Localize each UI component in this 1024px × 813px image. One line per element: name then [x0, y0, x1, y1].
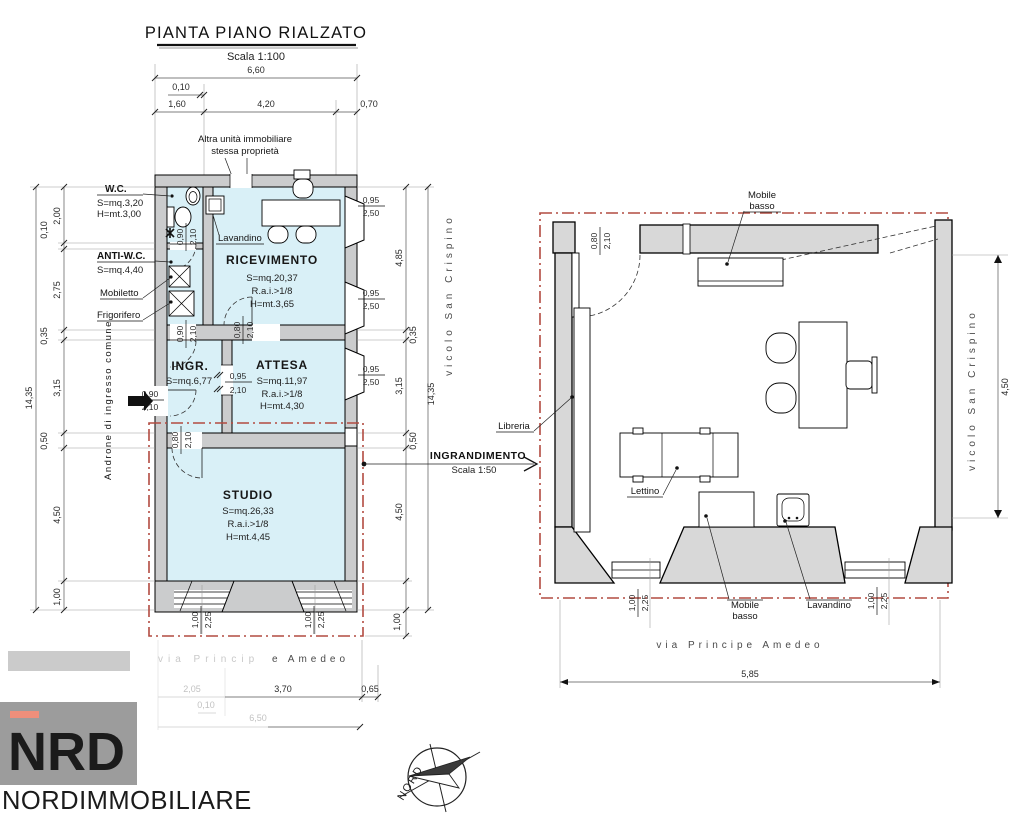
svg-text:2,10: 2,10 [245, 321, 255, 338]
logo-n-bar [10, 711, 39, 718]
svg-text:0,50: 0,50 [408, 432, 418, 450]
mobile-basso-top [698, 258, 783, 286]
chair-back [294, 170, 310, 179]
title-scale: Scala 1:100 [227, 51, 285, 63]
floorplan-drawing: PIANTA PIANO RIALZATO Scala 1:100 6,60 0… [0, 0, 1024, 813]
street-via-dark: e Amedeo [272, 654, 349, 665]
svg-text:6,50: 6,50 [249, 713, 267, 723]
wall-top-enlarged [640, 225, 878, 253]
svg-text:S=mq.4,40: S=mq.4,40 [97, 265, 143, 276]
svg-text:1,00: 1,00 [392, 613, 402, 631]
mid-dimension-chain: 4,85 0,35 3,15 0,50 4,50 1,00 14,35 vico… [357, 184, 455, 639]
svg-text:2,50: 2,50 [363, 377, 380, 387]
svg-text:1,00: 1,00 [190, 611, 200, 628]
chair [268, 226, 288, 243]
svg-text:3,15: 3,15 [394, 377, 404, 395]
svg-text:4,50: 4,50 [52, 506, 62, 524]
svg-text:2,25: 2,25 [203, 611, 213, 628]
svg-text:2,75: 2,75 [52, 281, 62, 299]
svg-text:R.a.i.>1/8: R.a.i.>1/8 [252, 286, 293, 297]
room-label-studio: STUDIO S=mq.26,33 R.a.i.>1/8 H=mt.4,45 [222, 488, 274, 543]
svg-text:0,50: 0,50 [39, 432, 49, 450]
dim-160: 1,60 [168, 99, 186, 109]
wall-left-enlarged [555, 253, 572, 527]
svg-text:INGR.: INGR. [171, 359, 208, 373]
svg-text:RICEVIMENTO: RICEVIMENTO [226, 253, 318, 267]
street-via-enlarged: via Principe Amedeo [656, 640, 823, 651]
north-compass: NORD [395, 744, 480, 812]
svg-text:R.a.i.>1/8: R.a.i.>1/8 [262, 389, 303, 400]
bottom-pillar-enlarged [660, 527, 845, 583]
chair [766, 383, 796, 413]
bottom-pillar [222, 581, 304, 612]
dim-420: 4,20 [257, 99, 275, 109]
svg-text:14,35: 14,35 [24, 387, 34, 410]
svg-text:S=mq.3,20: S=mq.3,20 [97, 198, 143, 209]
svg-text:0,80: 0,80 [232, 321, 242, 338]
svg-text:H=mt.3,00: H=mt.3,00 [97, 209, 141, 220]
svg-text:H=mt.4,45: H=mt.4,45 [226, 532, 270, 543]
svg-text:0,95: 0,95 [363, 364, 380, 374]
street-building-mass [8, 651, 130, 671]
chair [296, 226, 316, 243]
compass-label: NORD [395, 764, 426, 803]
bay-window-4 [345, 428, 357, 446]
svg-text:Mobile: Mobile [731, 600, 759, 611]
svg-text:Frigorifero: Frigorifero [97, 310, 140, 321]
svg-text:0,35: 0,35 [408, 326, 418, 344]
svg-text:Libreria: Libreria [498, 421, 530, 432]
svg-text:3,15: 3,15 [52, 379, 62, 397]
svg-text:H=mt.4,30: H=mt.4,30 [260, 401, 304, 412]
svg-text:0,65: 0,65 [361, 684, 379, 694]
svg-text:2,10: 2,10 [183, 431, 193, 448]
office-chair-back [872, 357, 877, 393]
antiwc-fixtures [169, 266, 194, 316]
svg-text:2,25: 2,25 [640, 594, 650, 611]
svg-text:1,00: 1,00 [866, 592, 876, 609]
svg-text:STUDIO: STUDIO [223, 488, 273, 502]
dim-660: 6,60 [247, 65, 265, 75]
svg-text:0,90: 0,90 [175, 228, 185, 245]
enlargement-callout: INGRANDIMENTO Scala 1:50 [362, 450, 537, 476]
page-title: PIANTA PIANO RIALZATO [145, 24, 367, 42]
bay-window-1 [345, 196, 364, 248]
svg-text:0,35: 0,35 [39, 327, 49, 345]
wall-top [155, 175, 357, 187]
mobile-basso-bottom [699, 492, 754, 527]
plan-enlarged [553, 220, 952, 583]
opening-top [230, 174, 252, 188]
svg-text:2,25: 2,25 [316, 611, 326, 628]
svg-text:Lavandino: Lavandino [218, 233, 262, 244]
wall-top-left-step [553, 222, 575, 253]
bay-window-3 [345, 348, 364, 400]
floorplan-sheet: PIANTA PIANO RIALZATO Scala 1:100 6,60 0… [0, 0, 1024, 813]
svg-text:2,00: 2,00 [52, 207, 62, 225]
window-left-enlarged [612, 562, 660, 578]
wall-joint [683, 224, 690, 254]
dim-010-top: 0,10 [172, 82, 190, 92]
street-vicolo-enlarged: vicolo San Crispino [967, 309, 978, 471]
svg-text:S=mq.20,37: S=mq.20,37 [246, 273, 298, 284]
logo-company-name: NORDIMMOBILIARE [2, 787, 252, 813]
chair [293, 179, 313, 198]
svg-text:H=mt.3,65: H=mt.3,65 [250, 299, 294, 310]
svg-text:Mobile: Mobile [748, 190, 776, 201]
svg-text:Lettino: Lettino [631, 486, 660, 497]
svg-text:2,10: 2,10 [188, 228, 198, 245]
svg-text:0,10: 0,10 [39, 221, 49, 239]
svg-text:4,85: 4,85 [394, 249, 404, 267]
svg-text:0,95: 0,95 [230, 371, 247, 381]
dim-window-right-enlarged: 1,00 2,25 [866, 587, 889, 615]
dim-right-enlarged: 4,50 vicolo San Crispino [952, 255, 1010, 518]
lettino-bed [620, 428, 738, 482]
svg-text:2,50: 2,50 [363, 301, 380, 311]
corner-bottom-right [905, 527, 952, 583]
desk-enlarged [766, 322, 877, 428]
street-vicolo-main: vicolo San Crispino [444, 214, 455, 376]
svg-text:1,00: 1,00 [627, 594, 637, 611]
dim-070: 0,70 [360, 99, 378, 109]
svg-text:2,10: 2,10 [188, 325, 198, 342]
toilet-tank [167, 207, 174, 227]
chair [766, 333, 796, 363]
svg-text:INGRANDIMENTO: INGRANDIMENTO [430, 450, 526, 462]
lavandino-enlarged [777, 494, 809, 526]
svg-text:W.C.: W.C. [105, 184, 127, 195]
logo: N RD NORDIMMOBILIARE [0, 702, 252, 813]
top-dimensions: 6,60 0,10 1,60 4,20 0,70 [152, 64, 378, 187]
dim-door-enlarged: 0,80 2,10 [589, 227, 612, 255]
svg-text:S=mq.26,33: S=mq.26,33 [222, 506, 274, 517]
logo-letter-n: N [8, 722, 47, 782]
svg-text:basso: basso [732, 611, 757, 622]
svg-text:0,80: 0,80 [589, 232, 599, 249]
svg-text:S=mq.6,77: S=mq.6,77 [166, 376, 212, 387]
svg-text:4,50: 4,50 [1000, 378, 1010, 396]
svg-text:2,10: 2,10 [230, 385, 247, 395]
window-right-enlarged [845, 562, 905, 578]
logo-letters-rd: RD [47, 722, 125, 782]
svg-text:0,95: 0,95 [363, 288, 380, 298]
svg-text:14,35: 14,35 [426, 383, 436, 406]
corner-bottom-left [555, 527, 614, 583]
svg-text:Lavandino: Lavandino [807, 600, 851, 611]
wall-right-enlarged [935, 220, 952, 530]
svg-text:3,70: 3,70 [274, 684, 292, 694]
desk [262, 200, 340, 226]
svg-text:2,05: 2,05 [183, 684, 201, 694]
svg-text:2,10: 2,10 [602, 232, 612, 249]
svg-text:Altra unità immobiliare: Altra unità immobiliare [198, 134, 292, 145]
label-androne: Androne di ingresso comune [103, 320, 114, 480]
office-chair [846, 361, 872, 389]
room-label-attesa: ATTESA S=mq.11,97 R.a.i.>1/8 H=mt.4,30 [256, 358, 308, 412]
svg-text:Mobiletto: Mobiletto [100, 288, 139, 299]
svg-text:ANTI-W.C.: ANTI-W.C. [97, 251, 146, 262]
svg-text:basso: basso [749, 201, 774, 212]
svg-text:1,00: 1,00 [52, 588, 62, 606]
svg-text:1,00: 1,00 [303, 611, 313, 628]
svg-text:2,50: 2,50 [363, 208, 380, 218]
svg-text:S=mq.11,97: S=mq.11,97 [257, 376, 308, 387]
svg-text:0,80: 0,80 [170, 431, 180, 448]
dim-window-left-enlarged: 1,00 2,25 [627, 589, 650, 617]
svg-text:0,95: 0,95 [363, 195, 380, 205]
door-leaf-enlarged [572, 253, 579, 317]
svg-text:ATTESA: ATTESA [256, 358, 308, 372]
svg-text:5,85: 5,85 [741, 669, 759, 679]
toilet-icon [175, 207, 191, 227]
libreria-bookcase [574, 308, 590, 532]
svg-text:0,90: 0,90 [175, 325, 185, 342]
title-block: PIANTA PIANO RIALZATO Scala 1:100 [145, 24, 367, 63]
svg-text:4,50: 4,50 [394, 503, 404, 521]
svg-text:2,25: 2,25 [879, 592, 889, 609]
bay-window-2 [345, 282, 364, 334]
svg-text:stessa proprietà: stessa proprietà [211, 146, 279, 157]
street-via-faded: via Princip [158, 654, 259, 665]
svg-text:R.a.i.>1/8: R.a.i.>1/8 [228, 519, 269, 530]
svg-text:0,10: 0,10 [197, 700, 215, 710]
svg-text:Scala 1:50: Scala 1:50 [452, 465, 497, 476]
